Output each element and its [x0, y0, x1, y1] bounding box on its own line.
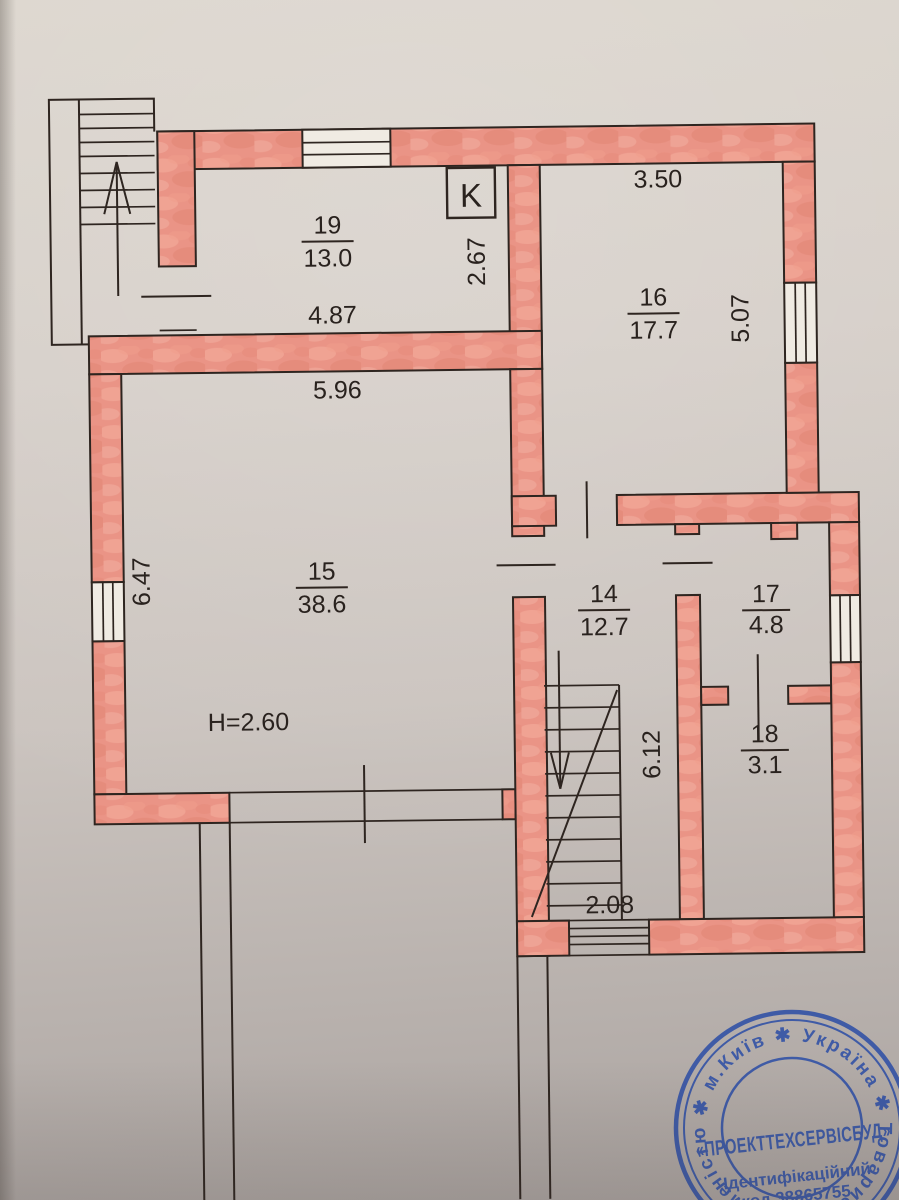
- room-14-number: 14: [590, 580, 618, 608]
- door-hall-to-room15: [497, 565, 556, 566]
- dim-room19-depth: 2.67: [463, 237, 492, 286]
- chimney-notch: [771, 523, 797, 539]
- room-15-number: 15: [308, 557, 336, 585]
- floor-plan-page: K 19 13.0 16 17.7 15 38.6 14 12.7: [0, 0, 899, 1200]
- stairs-down-arrow: [550, 651, 570, 789]
- room-15-label: 15 38.6: [295, 557, 348, 619]
- room-18-label: 18 3.1: [740, 720, 789, 780]
- door-hall-to-room17: [663, 563, 713, 564]
- door-stair-to-room19: [141, 296, 211, 297]
- room-16-number: 16: [639, 283, 667, 311]
- k-marker-label: K: [460, 177, 482, 214]
- dim-room15-depth: 6.47: [127, 557, 156, 606]
- room-14-label: 14 12.7: [578, 580, 631, 642]
- dim-room15-width: 5.96: [313, 376, 362, 405]
- room-15-area: 38.6: [298, 590, 347, 619]
- exterior-staircase: [49, 99, 157, 345]
- room-16-label: 16 17.7: [627, 283, 680, 345]
- room-19-label: 19 13.0: [301, 211, 354, 273]
- floor-plan-canvas: K 19 13.0 16 17.7 15 38.6 14 12.7: [0, 0, 899, 1200]
- room-17-number: 17: [752, 580, 780, 608]
- window-room19-top: [302, 129, 390, 168]
- dim-entrance-width: 2.08: [585, 891, 634, 920]
- dim-room16-depth: 5.07: [726, 294, 755, 343]
- ceiling-height-note: H=2.60: [208, 708, 290, 737]
- k-marker: K: [447, 167, 496, 218]
- terrace-outline: [200, 819, 551, 1200]
- room-16-area: 17.7: [629, 316, 678, 345]
- room-18-area: 3.1: [747, 751, 782, 779]
- room-19-number: 19: [313, 211, 341, 239]
- room-17-label: 17 4.8: [742, 580, 791, 640]
- door-room15-to-terrace: [364, 765, 365, 843]
- room-18-number: 18: [751, 720, 779, 748]
- dim-hall-depth: 6.12: [638, 730, 667, 779]
- room-17-area: 4.8: [749, 611, 784, 639]
- room-19-area: 13.0: [303, 244, 352, 273]
- window-room16-right: [784, 283, 817, 363]
- stamp-org-name: «ПРОЕКТТЕХСЕРВІСБУД»: [695, 1119, 892, 1162]
- entrance-steps: [569, 920, 649, 956]
- window-room17-right: [830, 595, 861, 662]
- room-14-area: 12.7: [580, 613, 629, 642]
- dim-room16-width: 3.50: [633, 165, 682, 194]
- door-hall-to-room16: [587, 481, 588, 538]
- dim-room19-width: 4.87: [308, 301, 357, 330]
- window-room15-left: [92, 582, 125, 641]
- stairs-up-arrow: [104, 162, 132, 296]
